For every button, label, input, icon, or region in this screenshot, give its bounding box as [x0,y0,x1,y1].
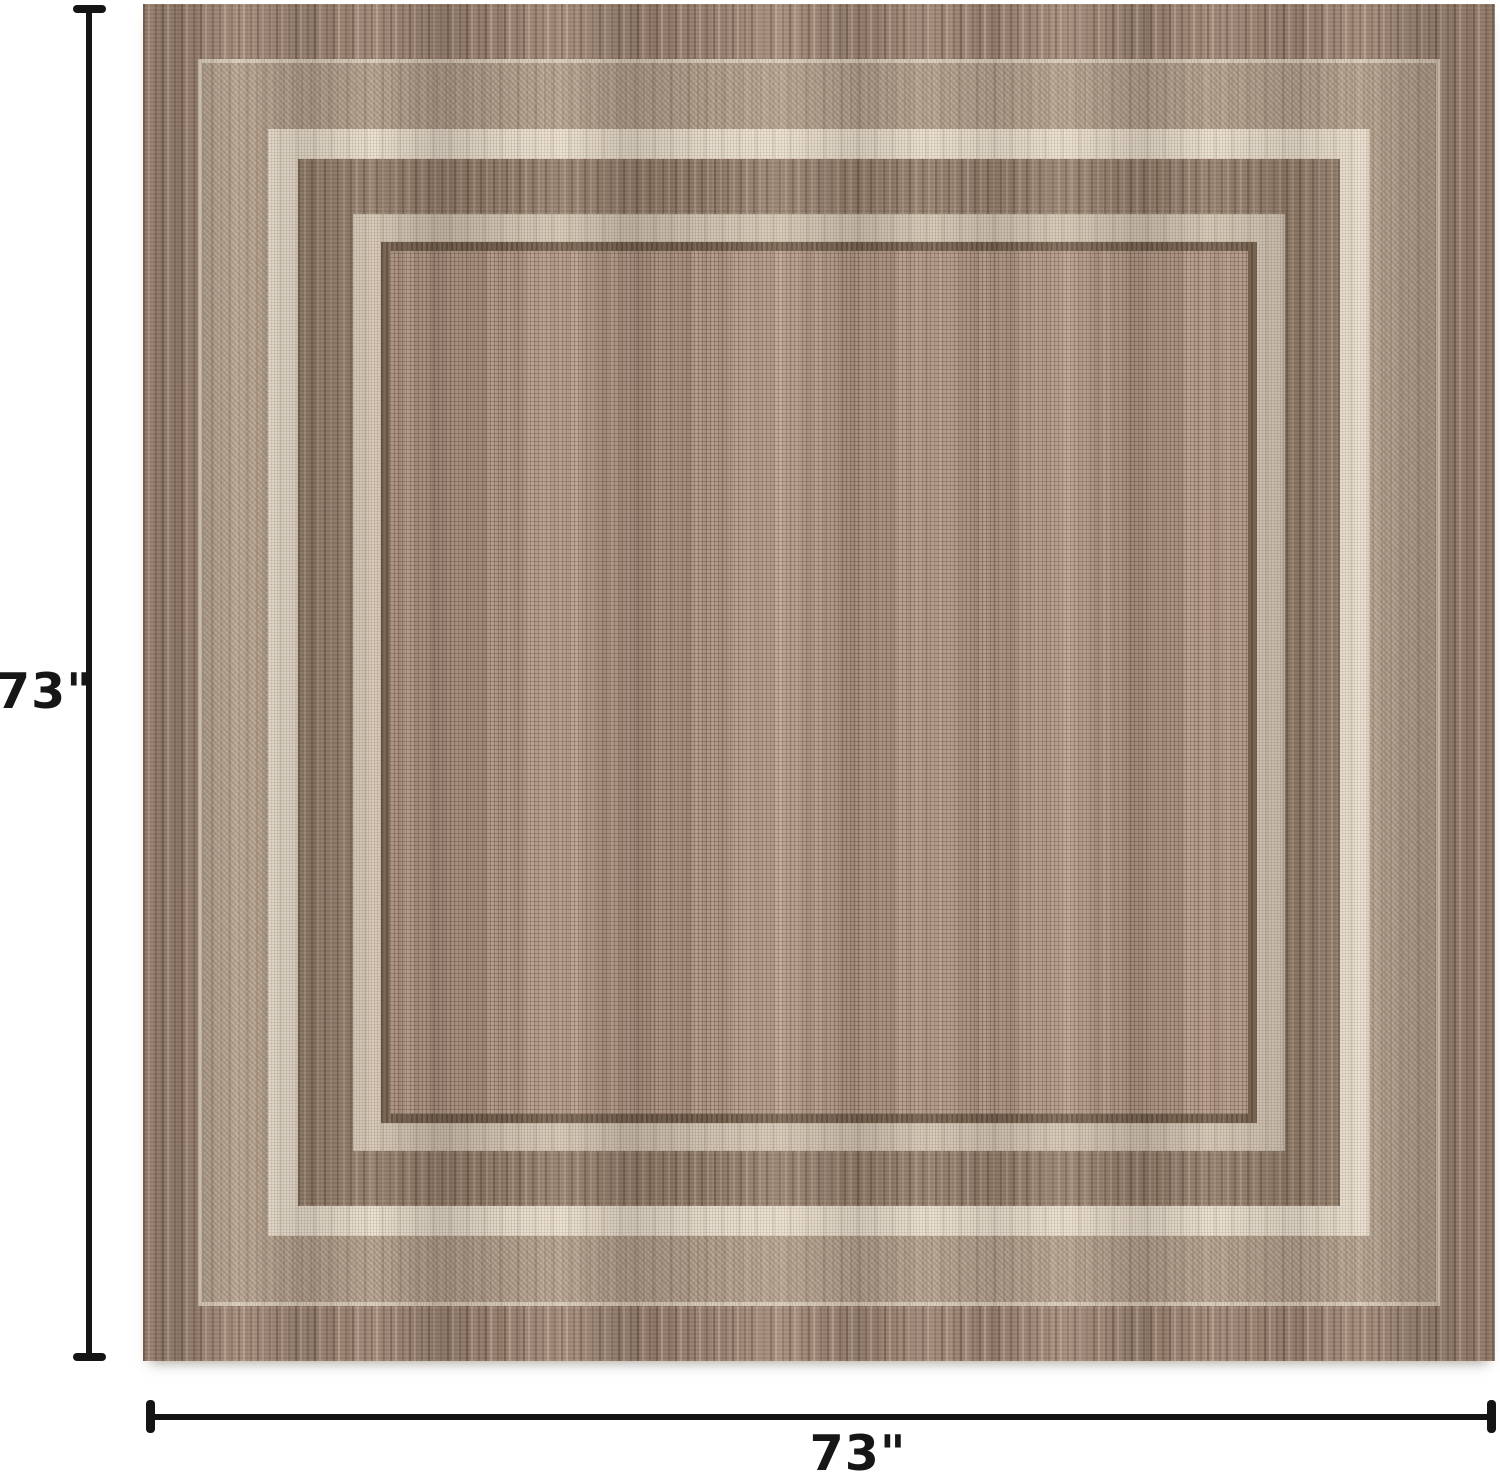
height-dimension-bottom-cap [73,1353,106,1361]
height-label: 73" [0,667,84,716]
height-dimension-top-cap [73,5,106,13]
rug-outer-edge-line [198,59,1440,1306]
rug-inner-brown-band [298,159,1340,1206]
rug-dark-accent-line [381,242,1257,1123]
rug-pale-border-line [353,214,1285,1151]
width-dimension-left-cap [146,1400,155,1433]
width-dimension-right-cap [1487,1400,1496,1433]
rug-outer-band [143,4,1495,1361]
width-label: 73" [788,1429,928,1478]
rug-taupe-band [202,63,1436,1302]
rug-center-field [390,251,1248,1114]
rug-cream-border-band [268,129,1370,1236]
width-dimension-line [151,1414,1491,1420]
rug-product-image [143,4,1495,1361]
